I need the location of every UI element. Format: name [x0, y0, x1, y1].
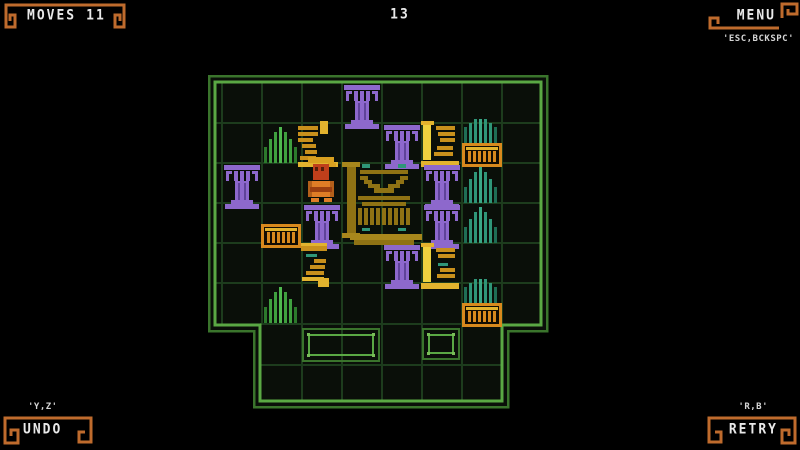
crate-sprite	[261, 224, 301, 248]
retry-shortcut-hint: 'R,B'	[738, 402, 768, 412]
moves-counter: MOVES 11	[27, 7, 106, 22]
moves-value: 11	[86, 7, 106, 24]
undo-button[interactable]: UNDO	[23, 421, 62, 438]
retry-button[interactable]: RETRY	[729, 421, 778, 438]
undo-shortcut-hint: 'Y,Z'	[28, 402, 58, 412]
level-number: 13	[376, 6, 424, 23]
menu-button[interactable]: MENU	[737, 7, 776, 24]
moves-label: MOVES	[27, 7, 76, 24]
game-screen: MOVES 11 13 MENU 'ESC,BCKSPC' 'Y,Z' UNDO…	[0, 0, 800, 450]
game-board[interactable]	[0, 0, 800, 450]
menu-shortcut-hint: 'ESC,BCKSPC'	[723, 34, 794, 44]
